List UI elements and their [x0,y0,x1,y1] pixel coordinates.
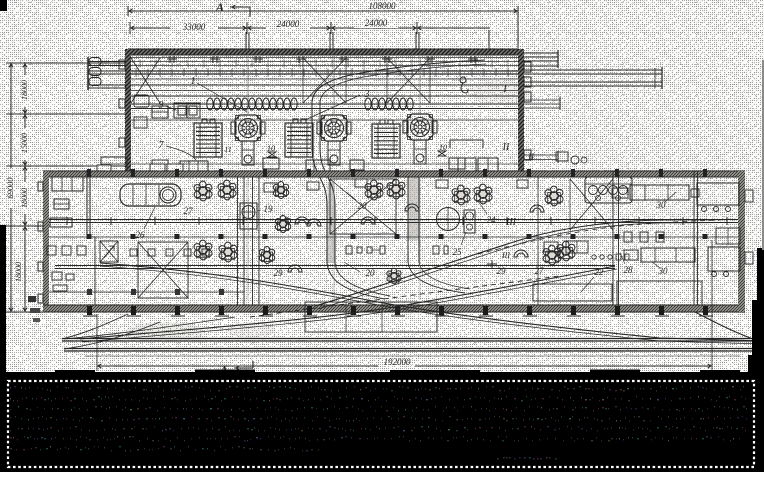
svg-text:192000: 192000 [384,357,412,367]
svg-text:30: 30 [656,200,667,210]
svg-text:18000: 18000 [14,262,23,282]
svg-text:25: 25 [453,247,463,257]
svg-text:29: 29 [274,268,284,278]
svg-text:11: 11 [224,145,231,154]
svg-text:A: A [215,0,224,14]
svg-text:10: 10 [439,143,447,152]
svg-text:19: 19 [264,204,274,214]
svg-text:26: 26 [136,230,146,240]
svg-text:29: 29 [497,266,507,276]
svg-text:I: I [502,84,507,95]
svg-text:3: 3 [364,89,370,100]
svg-text:28: 28 [624,265,634,275]
svg-text:9: 9 [159,100,164,111]
svg-text:18000: 18000 [20,188,29,208]
svg-text:15000: 15000 [20,133,29,153]
svg-text:1: 1 [191,76,196,87]
svg-text:27: 27 [535,266,545,276]
svg-text:III: III [501,251,510,260]
svg-text:20: 20 [358,201,368,211]
svg-text:24000: 24000 [365,18,388,28]
svg-text:II: II [502,142,510,153]
svg-text:II: II [527,152,535,162]
svg-text:24000: 24000 [277,19,300,29]
svg-text:69000: 69000 [5,177,15,199]
svg-text:III: III [505,217,517,228]
svg-text:20: 20 [366,268,376,278]
svg-text:27: 27 [184,206,194,216]
svg-text:18000: 18000 [20,80,29,100]
svg-text:33000: 33000 [182,22,206,32]
svg-text:24: 24 [487,215,497,225]
svg-text:10: 10 [267,144,275,153]
